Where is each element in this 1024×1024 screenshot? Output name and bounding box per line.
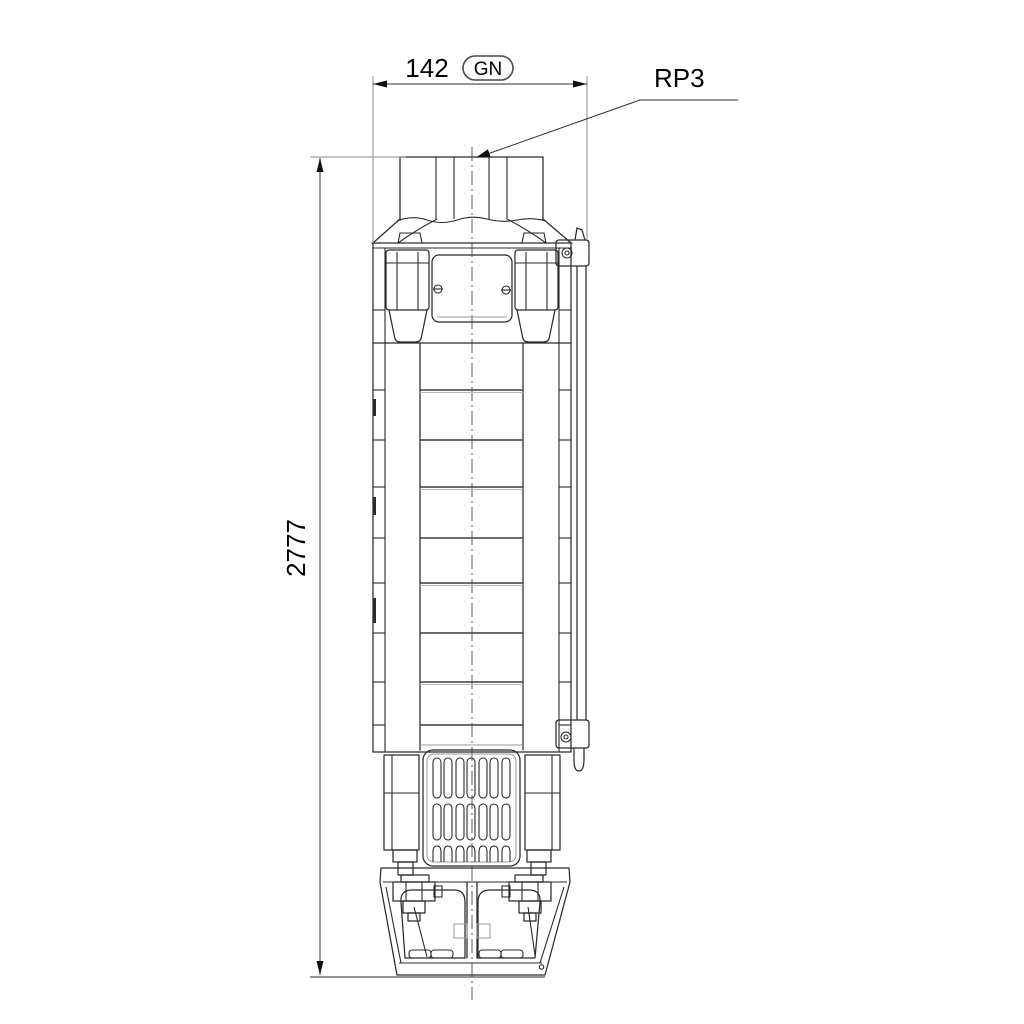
suction-strainer: [423, 750, 520, 866]
gn-badge-label: GN: [474, 59, 503, 80]
dim-height-value: 2777: [281, 519, 311, 577]
dim-width-arrow-right: [573, 81, 587, 88]
port-callout: RP3: [476, 63, 738, 158]
weld-mark: [373, 399, 377, 416]
weld-mark: [373, 598, 377, 623]
bracket-rib: [528, 907, 535, 955]
drawing-canvas: 142 GN 2777 RP3: [0, 0, 1024, 1024]
dimension-width: 142 GN: [373, 53, 587, 243]
guard-clamp-bottom: [556, 720, 589, 748]
tie-rod-right: [525, 755, 560, 875]
rp3-arrow: [476, 149, 491, 157]
stage-joints: [420, 390, 523, 745]
guard-top-tab: [575, 228, 585, 240]
technical-drawing: 142 GN 2777 RP3: [0, 0, 1024, 1024]
dim-height-arrow-bottom: [317, 961, 324, 975]
guard-tip: [574, 748, 584, 771]
guard-screw-bottom: [564, 735, 568, 739]
tie-rod-left: [384, 755, 419, 875]
strap-right: [559, 243, 571, 752]
bracket-foot: [431, 950, 453, 958]
bracket-foot: [501, 950, 523, 958]
weld-mark: [373, 497, 377, 515]
strap-clamp-left: [386, 250, 429, 342]
shoulder: [373, 219, 400, 243]
rp3-leader: [479, 100, 738, 157]
dimension-height: 2777: [281, 157, 406, 975]
strap-left: [373, 243, 386, 752]
guard-screw-top: [565, 251, 569, 255]
guard-screw-bottom: [561, 732, 571, 742]
strap-clamp-right: [515, 250, 558, 342]
strainer-slots: [433, 758, 510, 862]
bracket-hole: [477, 924, 490, 938]
shoulder: [398, 219, 437, 243]
bracket-foot: [479, 950, 501, 958]
dim-height-arrow-top: [317, 158, 324, 172]
name-plate: [432, 255, 512, 322]
bracket-foot: [409, 950, 431, 958]
rp3-label: RP3: [654, 63, 705, 93]
gn-badge: GN: [463, 56, 513, 80]
shoulder: [507, 219, 546, 243]
dim-width-arrow-left: [373, 81, 387, 88]
dim-width-value: 142: [405, 53, 448, 83]
drain-hole: [539, 965, 543, 969]
thread-runout: [397, 217, 546, 222]
